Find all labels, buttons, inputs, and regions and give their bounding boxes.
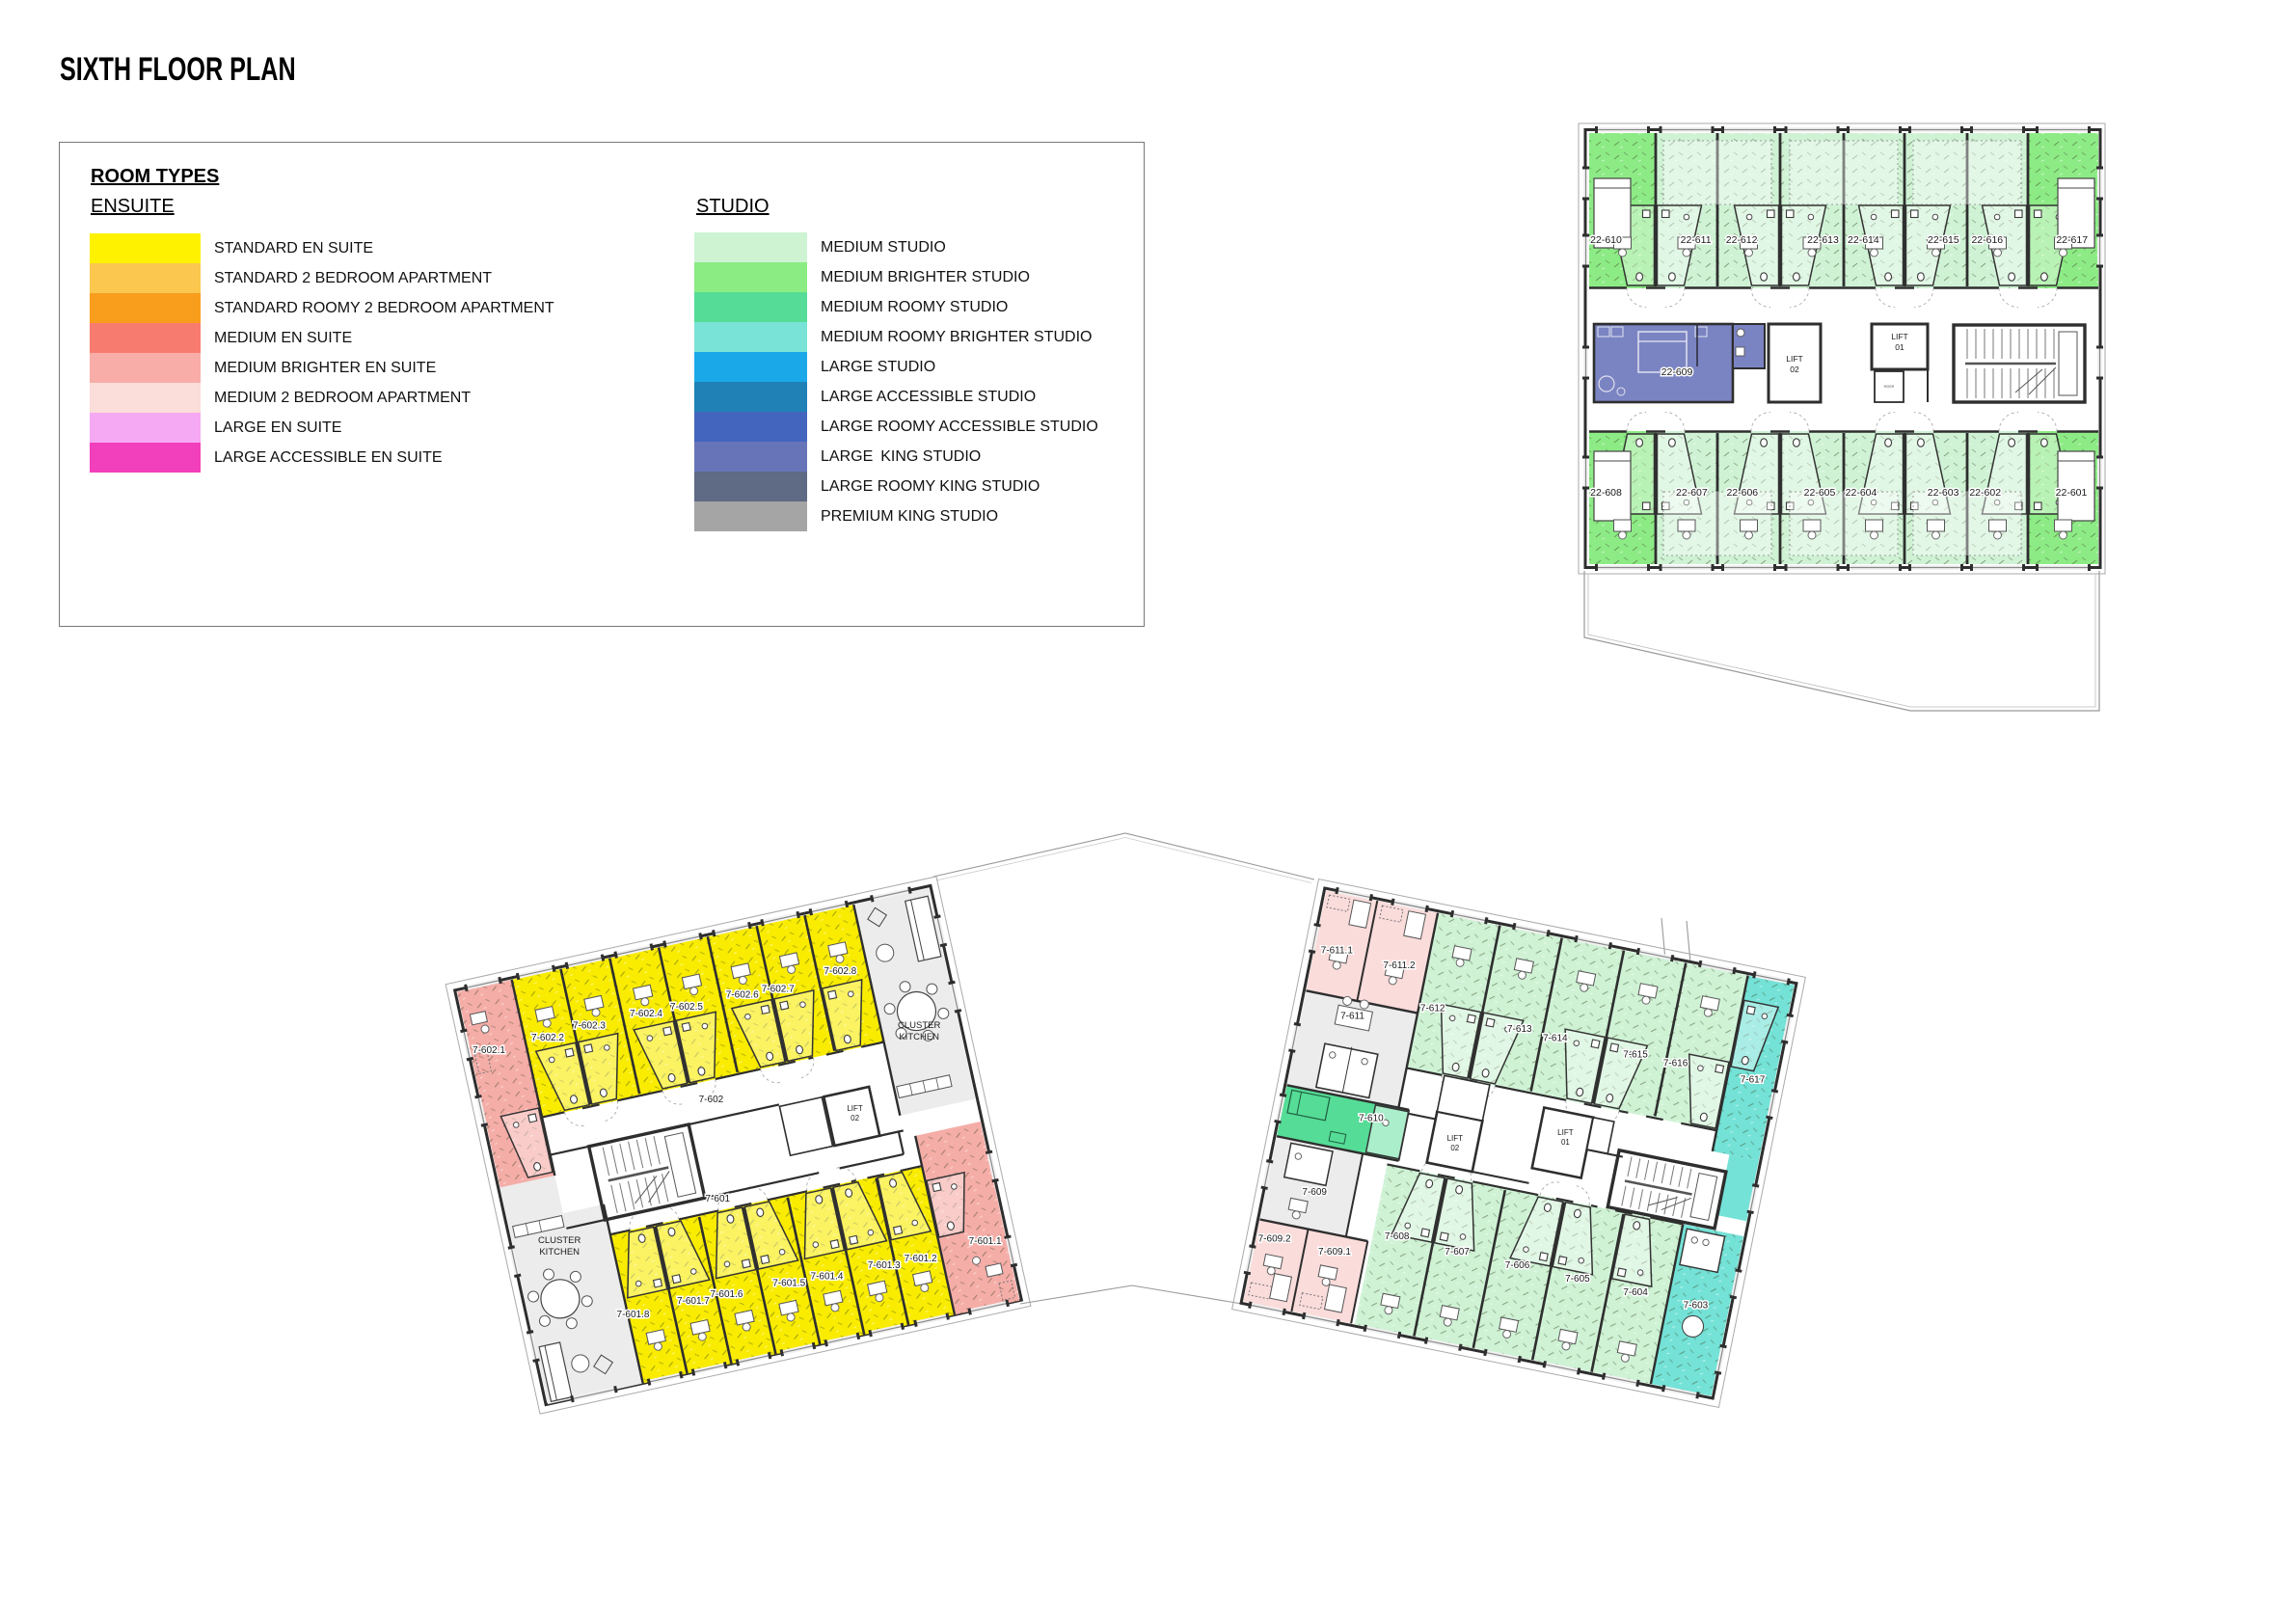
svg-text:7-609.1: 7-609.1 xyxy=(1318,1247,1351,1258)
svg-text:22-601: 22-601 xyxy=(2056,487,2088,499)
svg-text:LIFT: LIFT xyxy=(1557,1128,1574,1137)
svg-text:7-617: 7-617 xyxy=(1741,1074,1766,1085)
svg-text:22-610: 22-610 xyxy=(1590,234,1622,246)
svg-text:7-602: 7-602 xyxy=(699,1095,724,1105)
svg-text:7-601.8: 7-601.8 xyxy=(617,1310,650,1320)
svg-text:7-606: 7-606 xyxy=(1505,1260,1530,1271)
svg-text:7-608: 7-608 xyxy=(1385,1231,1410,1242)
svg-text:7-601.3: 7-601.3 xyxy=(868,1260,901,1271)
svg-text:7-601: 7-601 xyxy=(706,1194,731,1204)
svg-text:LIFT: LIFT xyxy=(847,1104,863,1113)
svg-text:22-613: 22-613 xyxy=(1807,234,1839,246)
svg-text:22-604: 22-604 xyxy=(1846,487,1877,499)
svg-text:LIFT: LIFT xyxy=(1786,354,1802,364)
svg-text:7-614: 7-614 xyxy=(1543,1033,1568,1043)
svg-text:22-612: 22-612 xyxy=(1726,234,1758,246)
svg-text:7-609: 7-609 xyxy=(1302,1187,1327,1198)
svg-text:7-602.4: 7-602.4 xyxy=(630,1009,662,1019)
svg-text:22-608: 22-608 xyxy=(1590,487,1622,499)
svg-text:7-602.3: 7-602.3 xyxy=(573,1021,606,1032)
svg-text:02: 02 xyxy=(1790,365,1799,374)
svg-text:7-611.2: 7-611.2 xyxy=(1383,960,1416,971)
svg-text:7-611: 7-611 xyxy=(1340,1011,1364,1021)
svg-text:01: 01 xyxy=(1561,1138,1570,1147)
svg-text:7-602.6: 7-602.6 xyxy=(726,990,759,1001)
svg-text:CLUSTER: CLUSTER xyxy=(538,1235,581,1246)
svg-text:22-611: 22-611 xyxy=(1681,234,1712,246)
svg-text:7-601.1: 7-601.1 xyxy=(969,1236,1002,1247)
svg-text:7-615: 7-615 xyxy=(1623,1050,1648,1061)
svg-text:KITCHEN: KITCHEN xyxy=(539,1247,580,1258)
svg-text:7-602.7: 7-602.7 xyxy=(762,985,795,995)
svg-text:7-611.1: 7-611.1 xyxy=(1321,945,1354,956)
svg-text:22-607: 22-607 xyxy=(1676,487,1708,499)
svg-text:7-612: 7-612 xyxy=(1420,1003,1445,1014)
svg-text:22-606: 22-606 xyxy=(1726,487,1758,499)
svg-text:CLUSTER: CLUSTER xyxy=(898,1020,940,1031)
svg-text:7-609.2: 7-609.2 xyxy=(1258,1233,1291,1244)
svg-text:7-604: 7-604 xyxy=(1623,1287,1648,1298)
svg-text:7-601.6: 7-601.6 xyxy=(711,1289,743,1300)
svg-text:7-601.4: 7-601.4 xyxy=(811,1272,844,1283)
svg-text:22-617: 22-617 xyxy=(2056,234,2088,246)
svg-text:02: 02 xyxy=(1450,1144,1459,1152)
svg-text:7-603: 7-603 xyxy=(1684,1301,1709,1312)
svg-text:7-602.2: 7-602.2 xyxy=(531,1033,564,1043)
svg-text:22-603: 22-603 xyxy=(1928,487,1959,499)
svg-text:7-607: 7-607 xyxy=(1445,1247,1470,1258)
svg-text:7-602.8: 7-602.8 xyxy=(824,966,856,977)
svg-text:7-602.5: 7-602.5 xyxy=(670,1002,703,1013)
svg-text:22-616: 22-616 xyxy=(1971,234,2003,246)
svg-text:22-615: 22-615 xyxy=(1928,234,1959,246)
svg-text:22-602: 22-602 xyxy=(1969,487,2001,499)
svg-text:7-616: 7-616 xyxy=(1663,1059,1688,1069)
svg-text:RISER: RISER xyxy=(1884,385,1895,389)
svg-text:22-614: 22-614 xyxy=(1848,234,1879,246)
svg-text:22-605: 22-605 xyxy=(1804,487,1836,499)
svg-text:LIFT: LIFT xyxy=(1447,1134,1464,1143)
svg-text:7-601.5: 7-601.5 xyxy=(772,1279,805,1289)
svg-text:22-609: 22-609 xyxy=(1661,366,1693,378)
svg-text:7-610: 7-610 xyxy=(1359,1114,1384,1124)
svg-text:LIFT: LIFT xyxy=(1891,332,1907,341)
svg-text:7-601.7: 7-601.7 xyxy=(677,1296,710,1307)
svg-text:01: 01 xyxy=(1895,342,1904,352)
svg-text:7-605: 7-605 xyxy=(1565,1274,1590,1285)
svg-text:KITCHEN: KITCHEN xyxy=(899,1032,939,1042)
svg-text:7-602.1: 7-602.1 xyxy=(473,1045,505,1056)
svg-text:7-601.2: 7-601.2 xyxy=(905,1254,937,1264)
svg-text:7-613: 7-613 xyxy=(1507,1024,1532,1035)
svg-text:02: 02 xyxy=(851,1114,859,1123)
